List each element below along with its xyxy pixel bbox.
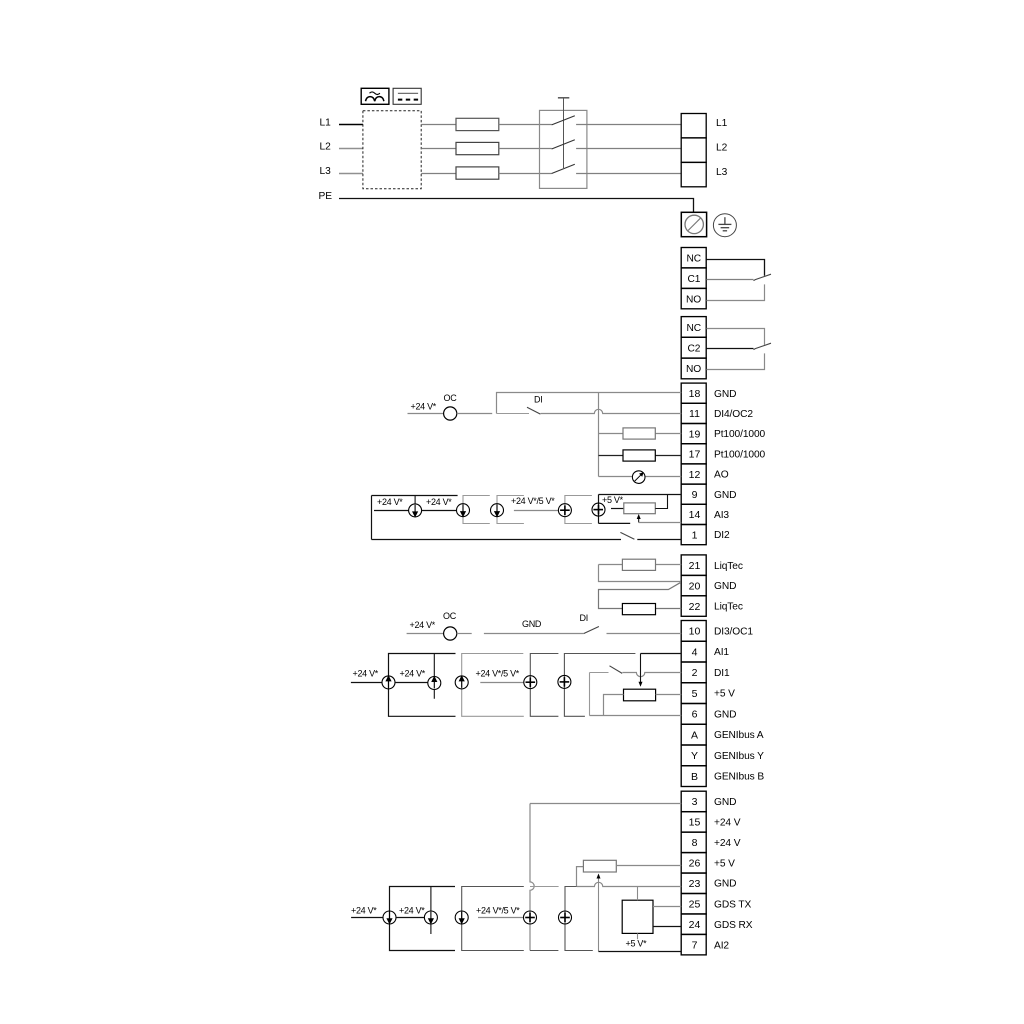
svg-text:8: 8 [692, 837, 698, 849]
svg-text:26: 26 [689, 858, 701, 870]
svg-text:GND: GND [714, 879, 736, 890]
svg-text:GENIbus A: GENIbus A [714, 730, 764, 741]
svg-text:LiqTec: LiqTec [714, 561, 743, 572]
svg-text:C1: C1 [688, 274, 701, 285]
svg-text:+24 V: +24 V [714, 818, 741, 829]
svg-text:GENIbus Y: GENIbus Y [714, 751, 764, 762]
svg-text:NO: NO [686, 295, 701, 306]
svg-text:DI1: DI1 [714, 668, 730, 679]
svg-text:DI: DI [534, 395, 542, 405]
svg-text:A: A [691, 729, 698, 741]
svg-text:GND: GND [522, 619, 542, 629]
svg-text:L1: L1 [320, 118, 332, 129]
svg-text:Pt100/1000: Pt100/1000 [714, 449, 766, 460]
svg-text:L3: L3 [716, 167, 728, 178]
svg-text:25: 25 [689, 899, 701, 911]
svg-text:B: B [691, 771, 698, 783]
svg-text:18: 18 [689, 388, 701, 400]
svg-text:Y: Y [691, 750, 698, 762]
svg-text:GND: GND [714, 581, 736, 592]
svg-text:19: 19 [689, 428, 701, 440]
svg-text:+24 V*: +24 V* [400, 669, 426, 679]
svg-text:+24 V*: +24 V* [399, 906, 425, 916]
svg-text:NO: NO [686, 364, 701, 375]
svg-text:6: 6 [692, 709, 698, 721]
svg-text:L2: L2 [716, 143, 728, 154]
svg-text:23: 23 [689, 878, 701, 890]
svg-text:3: 3 [692, 796, 698, 808]
svg-text:+24 V: +24 V [714, 838, 741, 849]
svg-text:GDS RX: GDS RX [714, 920, 753, 931]
svg-text:GENIbus B: GENIbus B [714, 772, 764, 783]
svg-text:AI3: AI3 [714, 510, 729, 521]
svg-text:L2: L2 [320, 142, 332, 153]
svg-text:+24 V*: +24 V* [410, 620, 436, 630]
svg-text:LiqTec: LiqTec [714, 602, 743, 613]
svg-text:+24 V*: +24 V* [426, 497, 452, 507]
svg-text:11: 11 [689, 408, 700, 420]
svg-text:C2: C2 [688, 344, 701, 355]
svg-text:NC: NC [687, 323, 702, 334]
svg-text:21: 21 [689, 560, 701, 572]
svg-text:DI3/OC1: DI3/OC1 [714, 627, 753, 638]
svg-text:DI4/OC2: DI4/OC2 [714, 409, 753, 420]
svg-text:22: 22 [689, 601, 701, 613]
svg-text:AI1: AI1 [714, 647, 729, 658]
svg-text:+24 V*: +24 V* [411, 402, 437, 412]
svg-text:+5 V*: +5 V* [626, 939, 648, 949]
svg-text:GND: GND [714, 710, 736, 721]
svg-text:2: 2 [692, 667, 698, 679]
svg-text:+5 V: +5 V [714, 689, 735, 700]
svg-text:20: 20 [689, 580, 701, 592]
svg-text:OC: OC [444, 393, 458, 403]
svg-text:DI: DI [580, 613, 588, 623]
svg-text:9: 9 [692, 489, 698, 501]
svg-text:7: 7 [692, 940, 698, 952]
svg-text:L3: L3 [320, 166, 332, 177]
svg-text:4: 4 [692, 646, 698, 658]
svg-text:L1: L1 [716, 118, 728, 129]
svg-text:PE: PE [319, 191, 333, 202]
svg-text:10: 10 [689, 626, 701, 638]
svg-text:GND: GND [714, 797, 736, 808]
svg-text:14: 14 [689, 509, 701, 521]
svg-text:5: 5 [692, 688, 698, 700]
svg-text:+24 V*: +24 V* [351, 906, 377, 916]
svg-text:+24 V*: +24 V* [377, 497, 403, 507]
svg-text:24: 24 [689, 919, 701, 931]
svg-text:Pt100/1000: Pt100/1000 [714, 429, 766, 440]
svg-text:GND: GND [714, 490, 736, 501]
svg-text:+24 V*: +24 V* [353, 669, 379, 679]
svg-text:+24 V*/5 V*: +24 V*/5 V* [476, 669, 520, 679]
svg-text:GND: GND [714, 389, 736, 400]
svg-text:NC: NC [687, 254, 702, 265]
svg-text:OC: OC [443, 611, 457, 621]
svg-text:17: 17 [689, 449, 701, 461]
svg-text:+5 V*: +5 V* [602, 495, 624, 505]
svg-text:12: 12 [689, 469, 701, 481]
svg-text:GDS TX: GDS TX [714, 899, 751, 910]
svg-text:DI2: DI2 [714, 530, 730, 541]
svg-text:+5 V: +5 V [714, 858, 735, 869]
svg-text:+24 V*/5 V*: +24 V*/5 V* [476, 905, 520, 915]
svg-text:AO: AO [714, 470, 729, 481]
svg-text:1: 1 [692, 529, 698, 541]
svg-text:AI2: AI2 [714, 940, 729, 951]
svg-text:+24 V*/5 V*: +24 V*/5 V* [511, 496, 555, 506]
svg-text:15: 15 [689, 817, 701, 829]
